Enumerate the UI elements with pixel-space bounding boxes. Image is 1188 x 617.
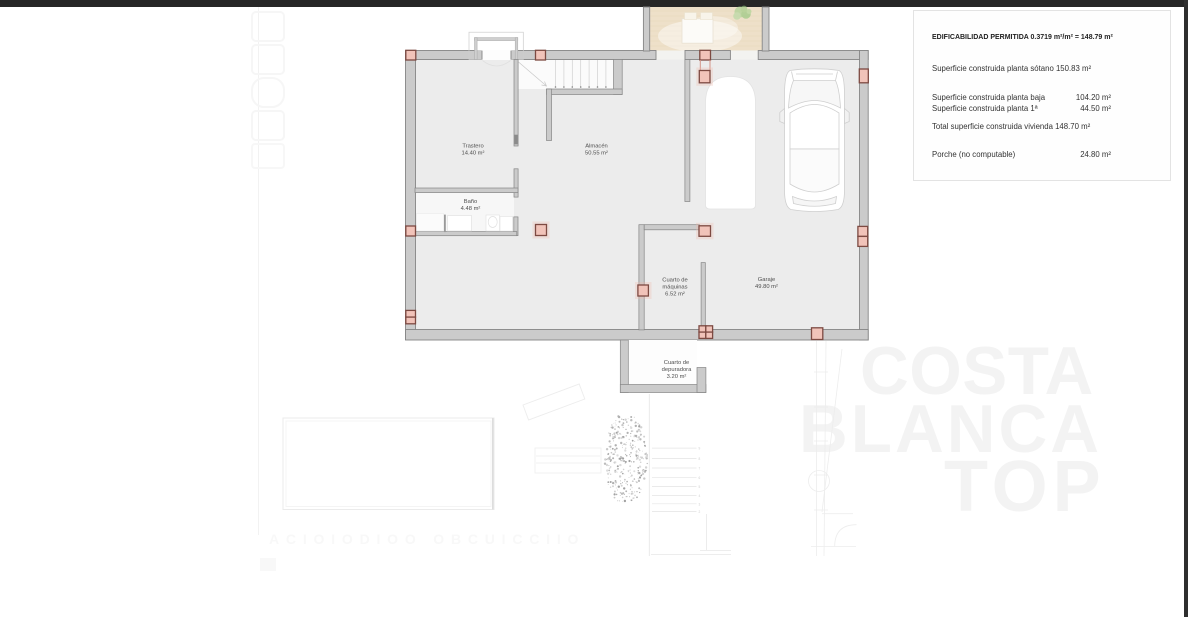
svg-text:7: 7 <box>699 467 701 471</box>
svg-text:5: 5 <box>699 485 701 489</box>
svg-text:4: 4 <box>699 494 701 498</box>
svg-text:6: 6 <box>699 476 701 480</box>
svg-text:3: 3 <box>699 502 701 506</box>
svg-text:2: 2 <box>699 510 701 514</box>
svg-text:Trastero14.40 m²: Trastero14.40 m² <box>462 144 485 157</box>
svg-text:Garaje49.80 m²: Garaje49.80 m² <box>755 277 778 290</box>
svg-text:Almacén50.55 m²: Almacén50.55 m² <box>585 144 608 157</box>
svg-text:8: 8 <box>699 457 701 461</box>
svg-text:Cuarto demáquinas6.52 m²: Cuarto demáquinas6.52 m² <box>662 278 687 298</box>
svg-text:9: 9 <box>699 447 701 451</box>
